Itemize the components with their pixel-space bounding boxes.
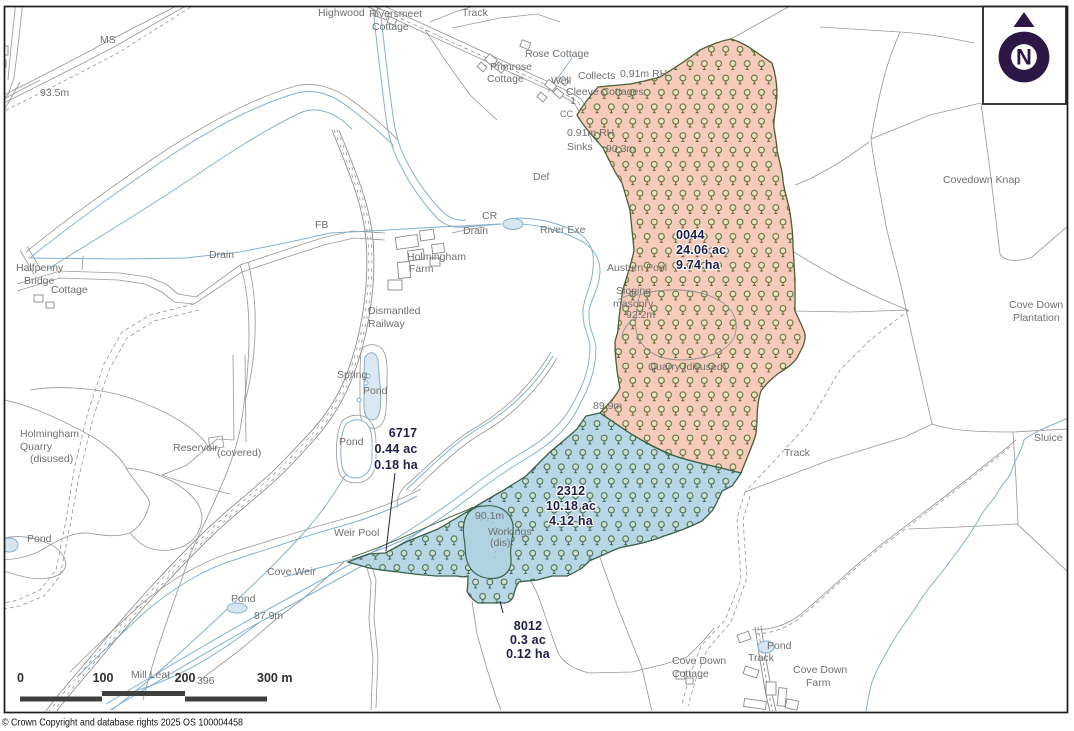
svg-text:100: 100 xyxy=(93,671,114,685)
svg-text:89.9m: 89.9m xyxy=(593,400,622,412)
svg-text:Cottage: Cottage xyxy=(372,21,409,33)
svg-text:Track: Track xyxy=(784,447,811,459)
svg-text:CR: CR xyxy=(482,210,498,222)
svg-text:2312: 2312 xyxy=(557,484,586,498)
svg-text:1: 1 xyxy=(570,95,576,107)
svg-text:Railway: Railway xyxy=(368,318,406,330)
svg-text:Holmingham: Holmingham xyxy=(20,428,79,440)
svg-text:Weir Pool: Weir Pool xyxy=(334,527,379,539)
svg-text:River Exe: River Exe xyxy=(540,224,586,236)
svg-text:Bridge: Bridge xyxy=(24,275,55,287)
svg-text:93.5m: 93.5m xyxy=(40,87,69,99)
svg-text:90.3m: 90.3m xyxy=(606,143,635,155)
svg-text:0.91m RH: 0.91m RH xyxy=(620,68,667,80)
svg-text:0.44 ac: 0.44 ac xyxy=(374,442,417,456)
svg-text:0: 0 xyxy=(17,671,24,685)
svg-text:MS: MS xyxy=(100,34,116,46)
svg-text:Highwood: Highwood xyxy=(318,7,365,19)
svg-text:24.06 ac: 24.06 ac xyxy=(676,243,726,257)
svg-text:Halfpenny: Halfpenny xyxy=(16,262,64,274)
svg-text:Holmingham: Holmingham xyxy=(407,251,466,263)
svg-text:Dismantled: Dismantled xyxy=(368,305,421,317)
svg-text:Farm: Farm xyxy=(409,263,434,275)
svg-text:Cove Weir: Cove Weir xyxy=(267,566,316,578)
svg-text:Spring: Spring xyxy=(337,369,368,381)
svg-text:CC: CC xyxy=(560,109,573,119)
svg-text:Drain: Drain xyxy=(463,225,488,237)
svg-text:Cove Down: Cove Down xyxy=(672,655,726,667)
svg-text:Pond: Pond xyxy=(767,640,792,652)
svg-text:Track: Track xyxy=(748,652,775,664)
svg-text:9.74 ha: 9.74 ha xyxy=(676,258,721,272)
svg-text:N: N xyxy=(1016,45,1032,70)
svg-text:92.2m: 92.2m xyxy=(626,309,655,321)
svg-text:Cove Down: Cove Down xyxy=(793,664,847,676)
svg-text:Pond: Pond xyxy=(363,385,388,397)
svg-text:Quarry: Quarry xyxy=(20,441,53,453)
svg-text:Covedown Knap: Covedown Knap xyxy=(943,174,1020,186)
svg-text:Rose Cottage: Rose Cottage xyxy=(525,48,589,60)
svg-text:Quarry (disused): Quarry (disused) xyxy=(648,361,726,373)
svg-text:6717: 6717 xyxy=(389,426,418,440)
svg-text:Austurn Pool: Austurn Pool xyxy=(607,262,667,274)
svg-text:Cottage: Cottage xyxy=(51,284,88,296)
svg-text:10.18 ac: 10.18 ac xyxy=(546,499,596,513)
svg-text:Cove Down: Cove Down xyxy=(1009,299,1063,311)
svg-text:396: 396 xyxy=(197,675,215,687)
svg-text:Cottage: Cottage xyxy=(672,668,709,680)
svg-text:Collects: Collects xyxy=(578,70,615,82)
svg-text:4.12 ha: 4.12 ha xyxy=(549,514,594,528)
svg-text:87.9m: 87.9m xyxy=(254,610,283,622)
svg-text:Riversmeet: Riversmeet xyxy=(369,8,422,20)
svg-text:8012: 8012 xyxy=(514,619,543,633)
svg-text:(dis): (dis) xyxy=(490,537,510,549)
svg-text:300 m: 300 m xyxy=(257,671,292,685)
svg-text:Mill Leat: Mill Leat xyxy=(131,669,170,681)
svg-text:0.18 ha: 0.18 ha xyxy=(374,458,419,472)
svg-text:0.12 ha: 0.12 ha xyxy=(506,647,551,661)
svg-text:© Crown Copyright and database: © Crown Copyright and database rights 20… xyxy=(2,717,243,729)
svg-text:Track: Track xyxy=(462,7,489,19)
svg-text:0.91m RH: 0.91m RH xyxy=(567,127,614,139)
svg-text:Pond: Pond xyxy=(231,593,256,605)
svg-text:Pond: Pond xyxy=(27,533,52,545)
svg-text:200: 200 xyxy=(175,671,196,685)
svg-text:0044: 0044 xyxy=(676,228,705,242)
svg-text:Plantation: Plantation xyxy=(1013,312,1060,324)
svg-text:Reservoir: Reservoir xyxy=(173,442,218,454)
svg-text:Sinks: Sinks xyxy=(567,141,593,153)
svg-text:Drain: Drain xyxy=(209,249,234,261)
svg-text:Sluice: Sluice xyxy=(1034,432,1063,444)
svg-text:Sloping: Sloping xyxy=(616,285,651,297)
svg-text:Cottage: Cottage xyxy=(487,73,524,85)
svg-text:Farm: Farm xyxy=(806,677,831,689)
svg-text:FB: FB xyxy=(315,219,328,231)
svg-text:0.3 ac: 0.3 ac xyxy=(510,633,546,647)
svg-text:Pond: Pond xyxy=(339,436,364,448)
svg-text:Cleeve Cottages: Cleeve Cottages xyxy=(566,86,644,98)
svg-text:(disused): (disused) xyxy=(30,453,73,465)
svg-text:(covered): (covered) xyxy=(217,447,261,459)
svg-text:Def: Def xyxy=(533,171,549,183)
svg-text:Primrose: Primrose xyxy=(490,61,532,73)
svg-text:90.1m: 90.1m xyxy=(475,510,504,522)
